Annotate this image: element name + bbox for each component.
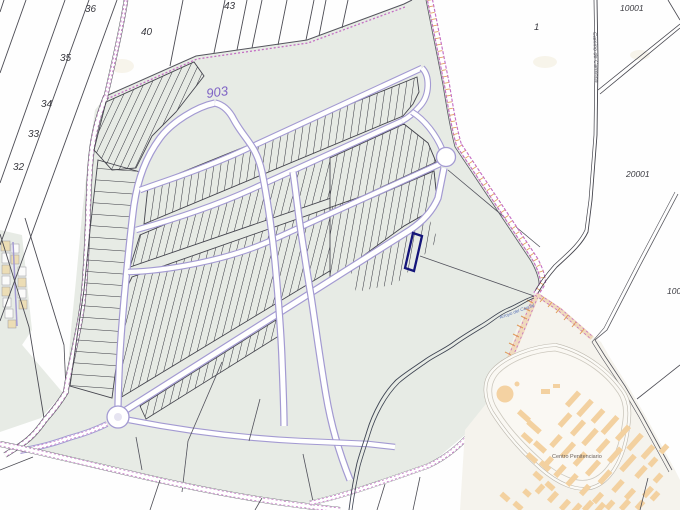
svg-text:33: 33	[28, 129, 40, 140]
svg-text:35: 35	[60, 53, 72, 64]
svg-text:40: 40	[141, 27, 153, 38]
svg-text:20001: 20001	[625, 169, 650, 179]
svg-text:34: 34	[41, 99, 53, 110]
svg-text:Centro Penitenciario: Centro Penitenciario	[552, 454, 602, 460]
svg-text:43: 43	[224, 1, 236, 12]
svg-text:903: 903	[205, 83, 229, 101]
svg-text:10001: 10001	[620, 3, 644, 13]
svg-text:32: 32	[13, 162, 25, 173]
svg-text:1000: 1000	[667, 286, 680, 296]
svg-text:36: 36	[85, 4, 97, 15]
svg-text:1: 1	[534, 22, 539, 33]
